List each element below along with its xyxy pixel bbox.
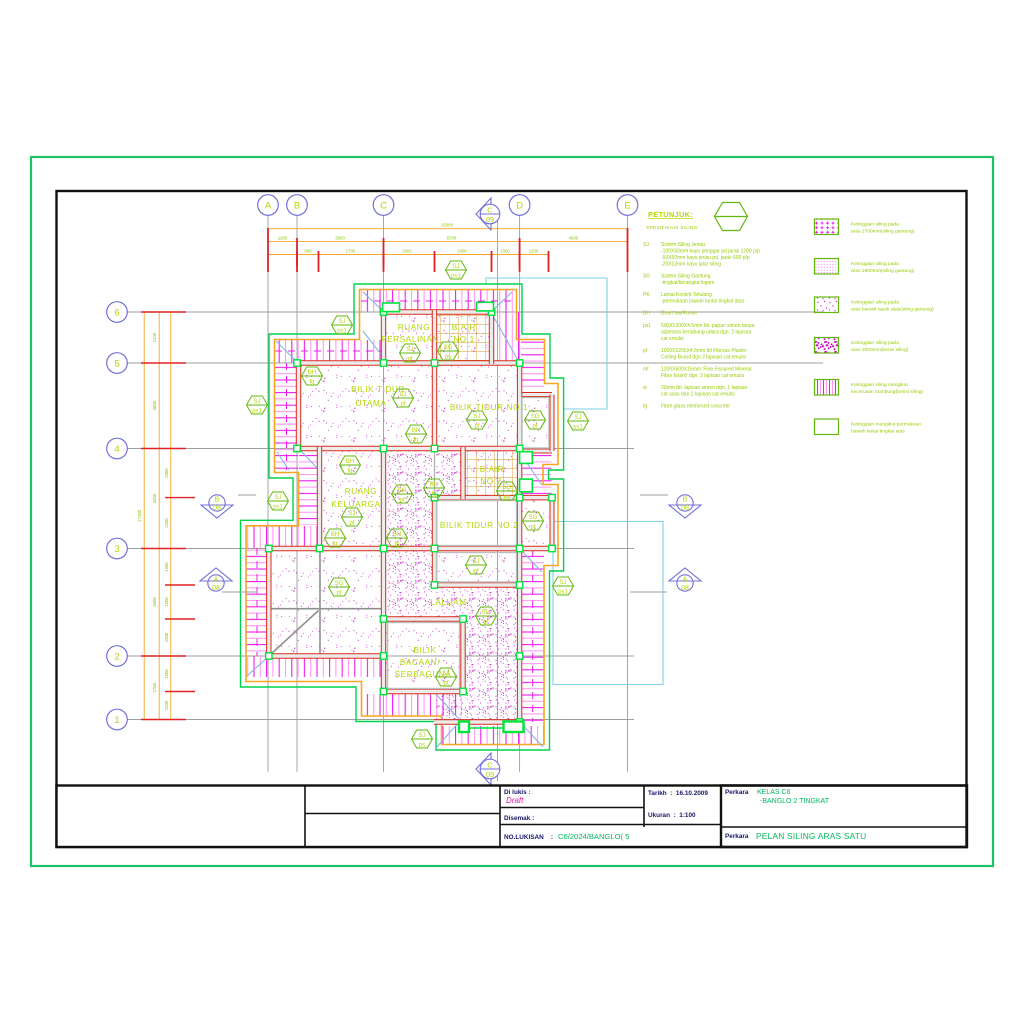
svg-text:1000X1200X4.5mm tbl Fibrous Pl: 1000X1200X4.5mm tbl Fibrous Plaster xyxy=(661,348,747,354)
svg-text:ps: ps xyxy=(419,743,425,749)
svg-text:BH: BH xyxy=(346,459,354,465)
svg-text:2000: 2000 xyxy=(164,468,169,478)
svg-text:mf: mf xyxy=(643,367,649,373)
svg-text:pf: pf xyxy=(400,402,405,408)
svg-text:20mm tbl. lapisan simen dgn. 1: 20mm tbl. lapisan simen dgn. 1 lapisan xyxy=(661,385,748,391)
svg-text:aras 3000mm(berisi siling): aras 3000mm(berisi siling) xyxy=(851,347,909,353)
svg-text:4200: 4200 xyxy=(152,493,157,503)
svg-text:ps1: ps1 xyxy=(337,329,347,335)
svg-text:SJ: SJ xyxy=(559,580,566,586)
svg-text:SG: SG xyxy=(531,414,540,420)
svg-text:2: 2 xyxy=(114,652,119,663)
svg-text:BACAAN/: BACAAN/ xyxy=(400,658,440,667)
svg-text:BH: BH xyxy=(393,532,401,538)
svg-text:aras bawah rasuk atas(siling g: aras bawah rasuk atas(siling gantung) xyxy=(851,307,934,313)
svg-text:PK: PK xyxy=(643,292,650,298)
svg-text:pf: pf xyxy=(349,521,354,527)
svg-text:aras 2900mm(siling gantung): aras 2900mm(siling gantung) xyxy=(851,268,915,274)
svg-text:Ketinggian siling pada: Ketinggian siling pada xyxy=(851,261,899,267)
svg-text:A: A xyxy=(214,577,219,584)
svg-text:Fibre glass reinforced concret: Fibre glass reinforced concrete xyxy=(661,404,730,410)
svg-text:BILIK TIDUR NO.2: BILIK TIDUR NO.2 xyxy=(440,521,518,530)
svg-text:1200X600X15mm 'Fine Fissured M: 1200X600X15mm 'Fine Fissured Mineral xyxy=(661,367,751,373)
svg-text:1500: 1500 xyxy=(164,669,169,679)
svg-text:fg: fg xyxy=(309,380,314,386)
svg-text:-20X13mm kayu jalur siling: -20X13mm kayu jalur siling xyxy=(661,262,721,268)
svg-text:-BANGLO 2 TINGKAT: -BANGLO 2 TINGKAT xyxy=(760,798,830,805)
svg-text:E: E xyxy=(624,201,630,212)
svg-text:B: B xyxy=(294,201,300,212)
svg-text:Sistem Siling Gantung: Sistem Siling Gantung xyxy=(661,274,711,280)
svg-text:09: 09 xyxy=(486,215,494,224)
svg-text:pf: pf xyxy=(474,424,479,430)
svg-text:1500: 1500 xyxy=(164,597,169,607)
svg-text:pf: pf xyxy=(407,357,412,363)
svg-text:BH: BH xyxy=(412,428,420,434)
svg-text:NO.1: NO.1 xyxy=(453,335,475,344)
svg-text:pf: pf xyxy=(399,498,404,504)
svg-text:BH: BH xyxy=(430,482,438,488)
svg-text:Perkara: Perkara xyxy=(725,833,749,840)
svg-text:fg: fg xyxy=(643,404,647,410)
svg-text:BH: BH xyxy=(308,370,316,376)
svg-text:ps1: ps1 xyxy=(451,274,461,280)
svg-text:pf: pf xyxy=(483,620,488,626)
svg-text:5700: 5700 xyxy=(447,236,457,241)
svg-text:KELAS C6: KELAS C6 xyxy=(757,789,791,796)
svg-text:kecerunan bumbung(berisi silin: kecerunan bumbung(berisi siling) xyxy=(851,389,923,395)
svg-text:UTAMA: UTAMA xyxy=(355,399,386,408)
svg-text:RUANG: RUANG xyxy=(345,487,378,496)
svg-text:SG: SG xyxy=(482,610,491,616)
svg-text:SG: SG xyxy=(643,274,650,280)
svg-text:1500: 1500 xyxy=(164,632,169,642)
svg-text:ps1: ps1 xyxy=(643,323,651,329)
svg-text:BH: BH xyxy=(643,311,650,317)
svg-text:cat emulsi: cat emulsi xyxy=(661,336,684,342)
svg-text:1200: 1200 xyxy=(278,236,288,241)
svg-text:si: si xyxy=(643,385,647,391)
svg-text:600X1200X4.5mm tbl. papan sime: 600X1200X4.5mm tbl. papan simen tanpa xyxy=(661,323,755,329)
svg-text:cat asas dan 2 lapisan cat emu: cat asas dan 2 lapisan cat emulsi xyxy=(661,392,735,398)
svg-text:Disemak :: Disemak : xyxy=(504,815,534,822)
svg-text:C6/2024/BANGLO( 5: C6/2024/BANGLO( 5 xyxy=(558,832,629,841)
svg-text:PETUNJUK:: PETUNJUK: xyxy=(648,210,693,219)
svg-text:Perkara: Perkara xyxy=(725,789,749,796)
svg-text:NO.LUKISAN :: NO.LUKISAN : xyxy=(504,834,553,841)
svg-text:ps1: ps1 xyxy=(252,409,262,415)
svg-text:Tarikh : 16.10.2009: Tarikh : 16.10.2009 xyxy=(648,790,708,797)
svg-text:08: 08 xyxy=(212,585,220,592)
svg-text:aras 2700mm(siling gantung): aras 2700mm(siling gantung) xyxy=(851,229,915,235)
svg-text:2000: 2000 xyxy=(402,249,412,254)
svg-text:B: B xyxy=(215,497,220,504)
svg-text:Sistem Siling Jeriau: Sistem Siling Jeriau xyxy=(661,242,705,248)
svg-text:Di lukis :: Di lukis : xyxy=(504,789,531,796)
svg-text:SJ: SJ xyxy=(442,671,449,677)
svg-text:900: 900 xyxy=(304,249,312,254)
svg-text:BH: BH xyxy=(331,532,339,538)
svg-text:2700: 2700 xyxy=(346,249,356,254)
svg-text:1200: 1200 xyxy=(164,700,169,710)
svg-text:ps: ps xyxy=(445,355,451,361)
svg-text:08: 08 xyxy=(681,505,689,512)
svg-text:pf: pf xyxy=(643,348,648,354)
svg-text:PERSALINAN: PERSALINAN xyxy=(381,335,439,344)
svg-text:SJ: SJ xyxy=(574,415,581,421)
svg-text:A: A xyxy=(265,201,272,212)
svg-text:fg: fg xyxy=(332,542,337,548)
svg-text:A: A xyxy=(683,577,688,584)
svg-text:-100X50mm kayu penggar pd jara: -100X50mm kayu penggar pd jarak 1200 p/p xyxy=(661,249,760,255)
svg-text:SG: SG xyxy=(529,515,538,521)
svg-text:SG: SG xyxy=(444,345,453,351)
svg-text:1500: 1500 xyxy=(164,562,169,572)
svg-text:D: D xyxy=(516,201,523,212)
svg-text:SJ: SJ xyxy=(472,559,479,565)
svg-text:4500: 4500 xyxy=(152,597,157,607)
svg-text:SJ: SJ xyxy=(399,392,406,398)
svg-text:1000: 1000 xyxy=(500,249,510,254)
svg-text:SJ: SJ xyxy=(406,347,413,353)
svg-text:BILIK: BILIK xyxy=(413,646,436,655)
svg-text:SJ: SJ xyxy=(418,733,425,739)
svg-text:Lantai Konkrit Tetulang: Lantai Konkrit Tetulang xyxy=(661,292,712,298)
svg-text:08: 08 xyxy=(681,585,689,592)
svg-text:-tingkat/kerangka logam: -tingkat/kerangka logam xyxy=(661,280,714,286)
svg-text:BILIK TIDUR: BILIK TIDUR xyxy=(351,385,405,394)
svg-text:pf: pf xyxy=(443,681,448,687)
svg-text:B.AIR: B.AIR xyxy=(480,465,504,474)
svg-text:1200: 1200 xyxy=(529,249,539,254)
svg-text:SJ: SJ xyxy=(274,495,281,501)
svg-text:Ketinggian siling mengikut: Ketinggian siling mengikut xyxy=(851,382,908,388)
svg-text:15000: 15000 xyxy=(441,223,454,228)
svg-text:SG: SG xyxy=(335,581,344,587)
svg-text:ps1: ps1 xyxy=(573,425,583,431)
svg-text:pf: pf xyxy=(532,424,537,430)
svg-text:BILIK TIDUR NO.1: BILIK TIDUR NO.1 xyxy=(450,403,528,412)
svg-text:Ketinggian siling pada: Ketinggian siling pada xyxy=(851,222,899,228)
svg-text:Ceiling Board dgn 2 lapisan ca: Ceiling Board dgn 2 lapisan cat emulsi xyxy=(661,355,746,361)
svg-text:B.AIR: B.AIR xyxy=(452,323,476,332)
svg-text:Draft: Draft xyxy=(506,796,524,805)
svg-text:Ketinggian mengikut permukaan: Ketinggian mengikut permukaan xyxy=(851,422,921,428)
svg-text:fg: fg xyxy=(431,492,436,498)
svg-text:SJ: SJ xyxy=(452,264,459,270)
svg-text:pf: pf xyxy=(530,525,535,531)
svg-text:2100: 2100 xyxy=(164,518,169,528)
svg-text:SG: SG xyxy=(503,485,512,491)
svg-text:SJ: SJ xyxy=(473,414,480,420)
svg-text:08: 08 xyxy=(213,505,221,512)
svg-text:2100: 2100 xyxy=(152,332,157,342)
svg-text:NO.2: NO.2 xyxy=(480,477,502,486)
svg-text:ps1: ps1 xyxy=(558,590,568,596)
svg-text:LALUAN: LALUAN xyxy=(430,598,465,607)
svg-text:fg: fg xyxy=(347,469,352,475)
svg-text:Ukuran : 1:100: Ukuran : 1:100 xyxy=(648,812,696,819)
svg-text:pf: pf xyxy=(336,591,341,597)
svg-text:ps1: ps1 xyxy=(273,505,283,511)
svg-text:SJ: SJ xyxy=(253,399,260,405)
svg-text:09: 09 xyxy=(486,770,494,779)
svg-text:3: 3 xyxy=(114,544,119,555)
svg-text:4: 4 xyxy=(114,444,119,455)
svg-text:1: 1 xyxy=(114,715,119,726)
svg-text:pf: pf xyxy=(473,569,478,575)
svg-text:RUANG: RUANG xyxy=(398,323,431,332)
svg-text:asbestos berlubang udara dgn.: asbestos berlubang udara dgn. 2 lapisan xyxy=(661,330,752,336)
svg-text:C: C xyxy=(380,201,387,212)
svg-text:SJ: SJ xyxy=(643,242,649,248)
svg-text:3600: 3600 xyxy=(152,400,157,410)
svg-text:bawah lantai tingkat atas: bawah lantai tingkat atas xyxy=(851,429,905,435)
svg-text:4500: 4500 xyxy=(569,236,579,241)
svg-text:2700: 2700 xyxy=(152,682,157,692)
svg-text:-permukaan bawah lantai tingka: -permukaan bawah lantai tingkat atas xyxy=(661,299,745,305)
svg-text:C: C xyxy=(487,761,493,770)
svg-text:Ketinggian siling pada: Ketinggian siling pada xyxy=(851,300,899,306)
svg-text:SJ: SJ xyxy=(338,319,345,325)
svg-text:ps: ps xyxy=(504,495,510,501)
svg-text:SG: SG xyxy=(398,488,407,494)
svg-text:5: 5 xyxy=(114,359,119,370)
svg-text:SPESIFIKASI SILING: SPESIFIKASI SILING xyxy=(646,225,698,231)
svg-text:B: B xyxy=(683,497,688,504)
svg-text:fg: fg xyxy=(394,542,399,548)
svg-text:17100: 17100 xyxy=(137,509,142,522)
svg-text:PELAN SILING ARAS SATU: PELAN SILING ARAS SATU xyxy=(756,831,866,841)
svg-text:C: C xyxy=(487,206,493,215)
svg-text:fg: fg xyxy=(413,438,418,444)
svg-text:Ketinggian siling pada: Ketinggian siling pada xyxy=(851,340,899,346)
svg-text:SJ: SJ xyxy=(348,511,355,517)
svg-text:Birai Has/Kornis: Birai Has/Kornis xyxy=(661,311,697,317)
svg-text:Fibre board' dgn. 2 lapisan ca: Fibre board' dgn. 2 lapisan cat emulsi xyxy=(661,373,744,379)
svg-text:-50X50mm kayu jeriau pd. jarak: -50X50mm kayu jeriau pd. jarak 600 p/p xyxy=(661,255,750,261)
svg-text:3600: 3600 xyxy=(335,236,345,241)
svg-text:6: 6 xyxy=(114,308,119,319)
svg-text:2400: 2400 xyxy=(457,249,467,254)
